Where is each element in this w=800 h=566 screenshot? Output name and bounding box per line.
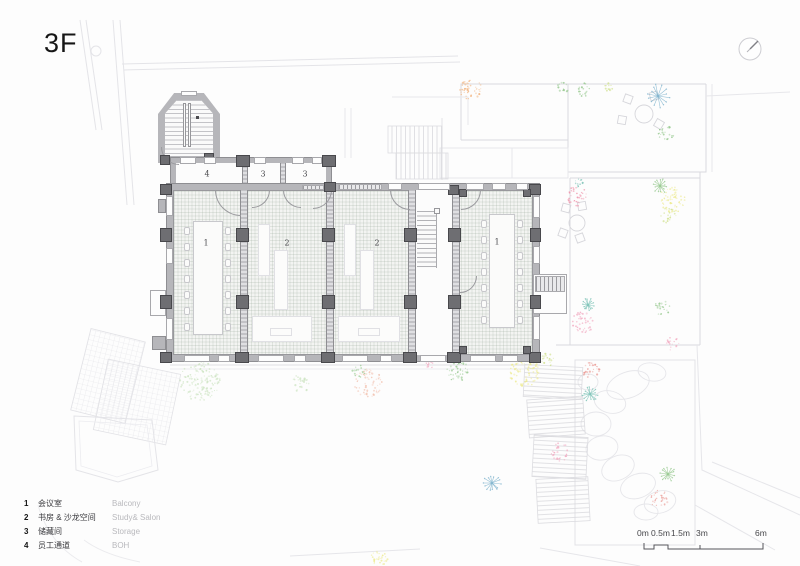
plant-speck [575,179,584,188]
column [160,295,172,309]
plant-speck [293,375,310,392]
chair [184,243,190,251]
chair [481,220,487,228]
chair [481,300,487,308]
column [160,184,172,195]
plant-speck [354,368,382,397]
tower-window [181,91,197,96]
window [380,355,392,362]
legend-item-3: 3 储藏间 Storage [24,524,160,538]
chair [517,236,523,244]
chair [225,323,231,331]
chair [517,300,523,308]
column [322,295,335,309]
plant-star [647,84,670,109]
column [523,189,531,197]
column [236,155,250,167]
legend: 1 会议室 Balcony 2 书房 & 沙龙空间 Study& Salon 3… [24,496,160,552]
page-title: 3F [44,28,78,59]
chair [481,236,487,244]
window [254,157,266,164]
window [516,183,528,190]
plant-star [582,298,595,311]
window [470,355,496,362]
plant-star [582,386,599,401]
column [404,228,417,242]
plant-speck [583,362,601,378]
legend-item-1: 1 会议室 Balcony [24,496,160,510]
window [292,157,304,164]
plant-speck [179,361,220,401]
chair [481,252,487,260]
column [236,228,249,242]
corridor-stairs [417,211,437,268]
window [312,157,322,164]
window [533,316,540,340]
column [322,155,336,167]
chair [225,291,231,299]
chair [481,316,487,324]
room-label-1-left: 1 [203,239,208,248]
chair [225,275,231,283]
floor-plan-canvas: 1 2 2 1 4 3 3 3F 1 会议室 Balcony 2 书房 & 沙龙… [0,0,800,566]
chair [184,291,190,299]
plant-speck [557,82,569,93]
room-label-4: 4 [204,170,209,179]
plant-star [483,476,502,491]
column [236,295,249,309]
chair [225,243,231,251]
plant-speck [658,126,674,140]
window [204,157,216,164]
column [523,346,531,354]
chair [184,227,190,235]
conference-table-right [489,214,515,328]
column [322,228,335,242]
window [533,246,540,264]
plant-speck [666,337,679,351]
plant-speck [459,80,481,99]
column [530,295,541,309]
chair [184,307,190,315]
legend-item-4: 4 员工通道 BOH [24,538,160,552]
window [180,157,196,164]
chair [517,268,523,276]
column [324,182,336,192]
column [403,352,417,363]
window [294,355,306,362]
plant-speck [446,361,468,381]
legend-item-2: 2 书房 & 沙龙空间 Study& Salon [24,510,160,524]
column [160,352,172,363]
plant-speck [541,353,554,366]
window [466,183,484,190]
column [160,155,170,165]
chair [517,220,523,228]
window [388,183,402,190]
window [218,355,230,362]
window [492,183,506,190]
chair [184,259,190,267]
plant-star [659,467,675,482]
plant-speck [660,208,676,224]
room-label-2-b: 2 [374,239,379,248]
plant-speck [655,301,670,315]
room-label-3-a: 3 [260,170,265,179]
chair [481,284,487,292]
window [166,318,173,340]
column [448,295,461,309]
column [404,295,417,309]
chair [225,259,231,267]
chair [225,307,231,315]
plant-speck [578,82,590,97]
room-label-1-right: 1 [494,238,499,247]
column [530,228,541,242]
column [459,189,467,197]
window [184,355,210,362]
chair [481,268,487,276]
window [533,196,540,218]
window [502,355,518,362]
column [321,352,335,363]
window [418,183,450,190]
chair [517,252,523,260]
column [459,346,467,354]
column [235,352,249,363]
room-label-3-b: 3 [302,170,307,179]
column [160,228,172,242]
chair [184,275,190,283]
window [342,355,368,362]
chair [184,323,190,331]
chair [225,227,231,235]
plant-speck [572,312,594,334]
window [166,248,173,264]
plant-speck [371,551,389,566]
room-label-2-a: 2 [284,239,289,248]
chair [517,284,523,292]
window [166,196,173,216]
window [258,355,284,362]
column [448,228,461,242]
window [420,355,446,362]
plant-star [653,178,667,192]
chair [517,316,523,324]
